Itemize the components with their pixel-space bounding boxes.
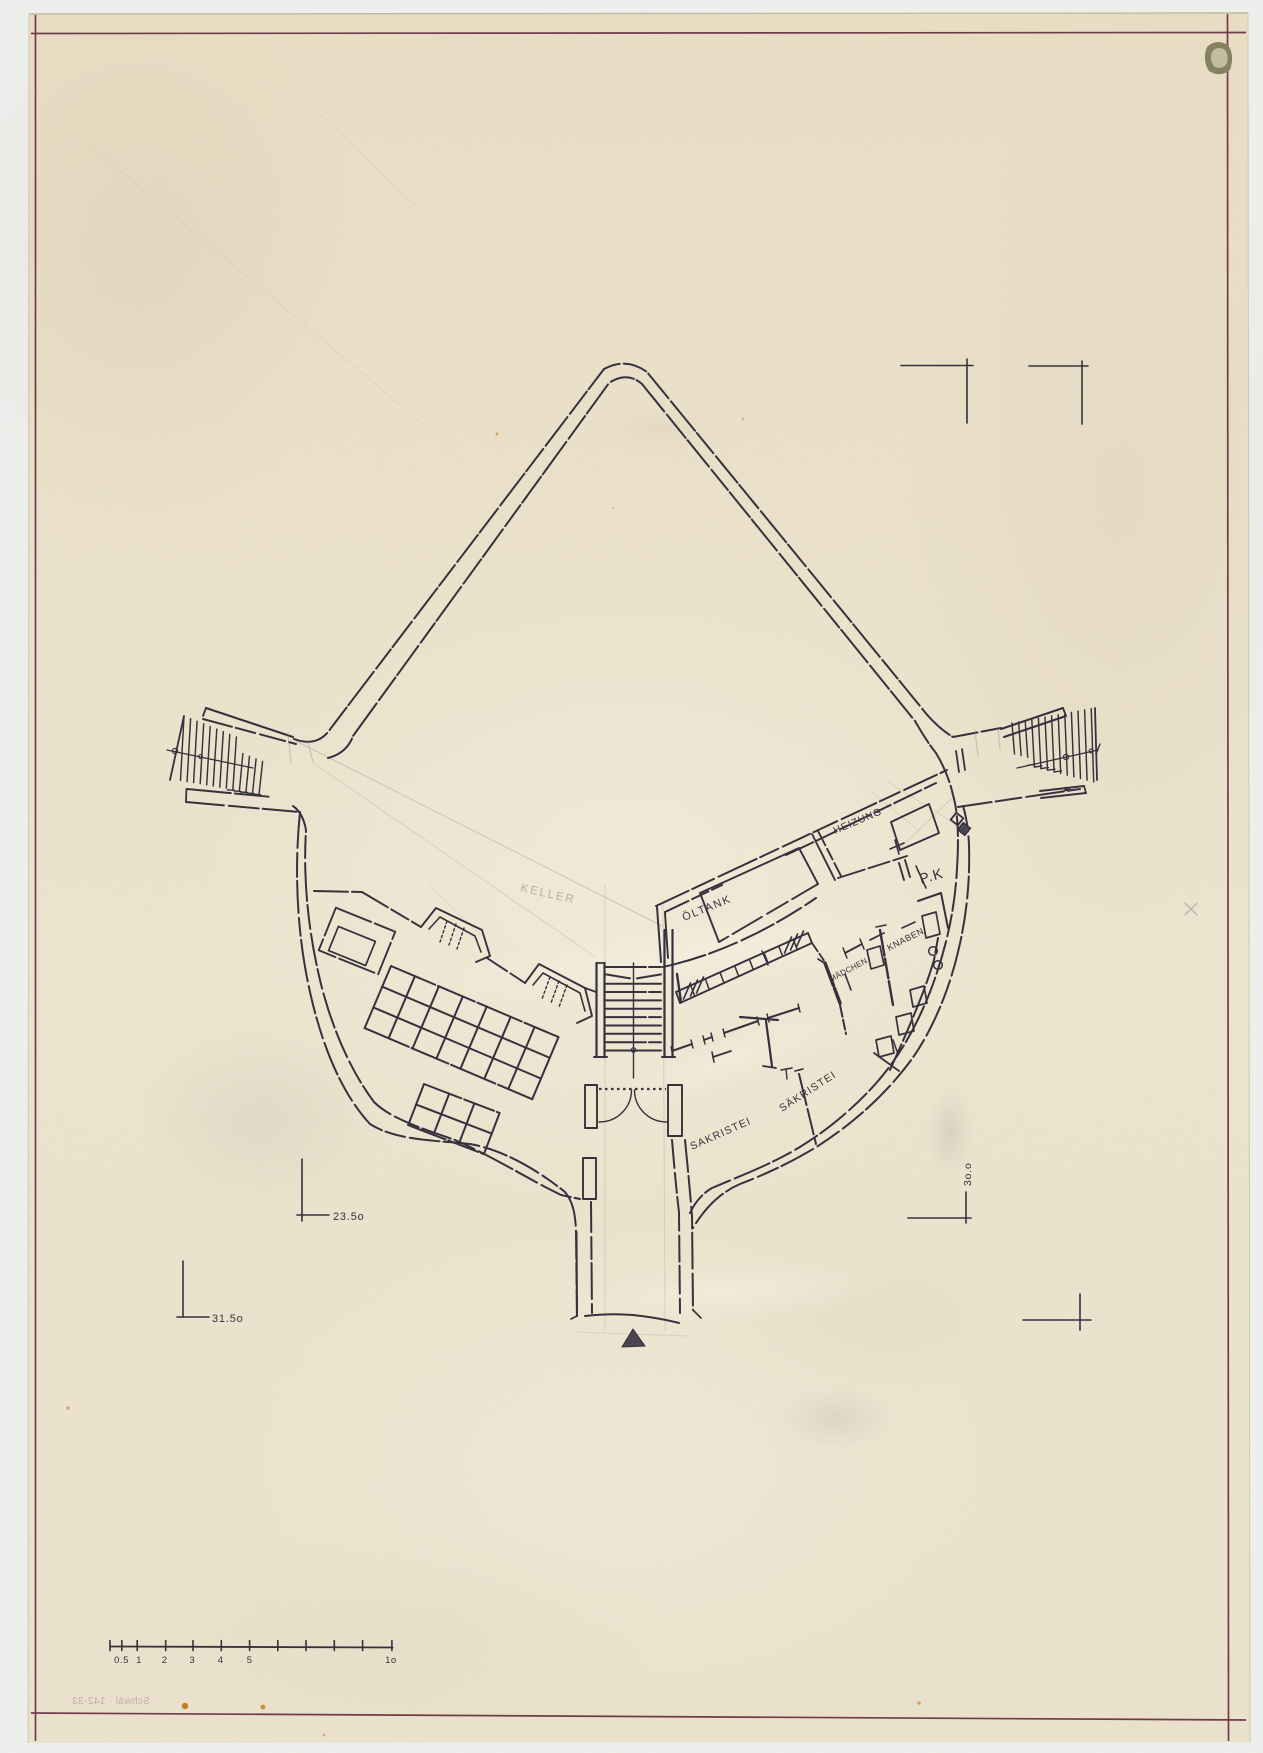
svg-text:23.5o: 23.5o — [333, 1211, 365, 1223]
svg-text:5: 5 — [247, 1655, 253, 1666]
svg-text:1: 1 — [136, 1655, 142, 1666]
svg-text:1o: 1o — [385, 1655, 397, 1666]
svg-text:0.5: 0.5 — [114, 1655, 129, 1666]
svg-text:3o.o: 3o.o — [962, 1162, 974, 1186]
svg-text:31.5o: 31.5o — [212, 1313, 244, 1325]
svg-text:3: 3 — [189, 1655, 195, 1666]
svg-text:4: 4 — [218, 1655, 224, 1666]
svg-text:2: 2 — [162, 1655, 168, 1666]
svg-text:Schwäl · 142-33: Schwäl · 142-33 — [72, 1696, 150, 1707]
